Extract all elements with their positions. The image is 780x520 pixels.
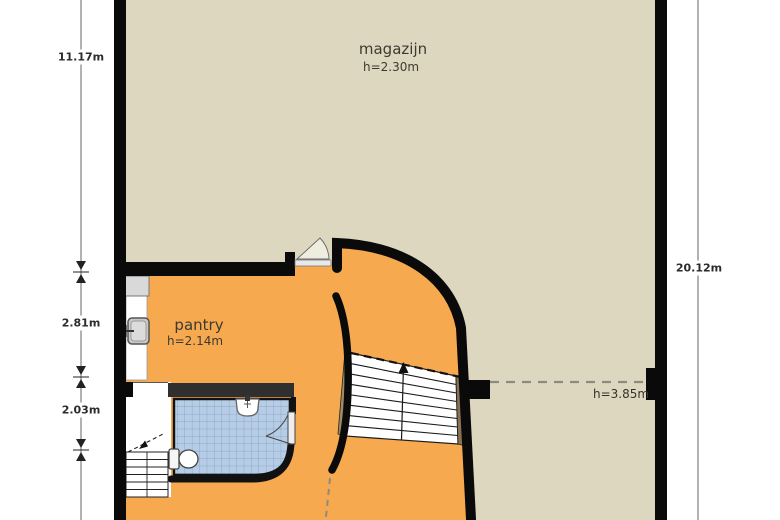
magazijn-height: h=2.30m <box>363 60 419 74</box>
bathroom-wall-top <box>168 383 294 397</box>
floorplan: magazijn h=2.30m pantry h=2.14m h=3.85m … <box>0 0 780 520</box>
toilet <box>169 449 198 469</box>
wall-pier-left <box>468 380 490 399</box>
dim-left-middle: 2.81m <box>59 316 104 331</box>
pantry-height: h=2.14m <box>167 334 223 348</box>
zone-height-note: h=3.85m <box>593 387 649 401</box>
dim-right: 20.12m <box>673 261 725 276</box>
wall-left <box>114 0 126 520</box>
dim-left-upper: 11.17m <box>55 50 107 65</box>
pantry-doorway-threshold <box>295 260 331 266</box>
pantry-wall-step <box>285 252 295 276</box>
dim-left-lower: 2.03m <box>59 403 104 418</box>
counter-appliance <box>125 276 149 296</box>
pantry-wall-top <box>126 262 285 276</box>
bathroom-wall-right <box>291 397 296 414</box>
magazijn-label: magazijn <box>359 40 427 58</box>
floorplan-drawing <box>0 0 780 520</box>
pantry-label: pantry <box>174 316 223 334</box>
wall-right <box>655 0 667 520</box>
